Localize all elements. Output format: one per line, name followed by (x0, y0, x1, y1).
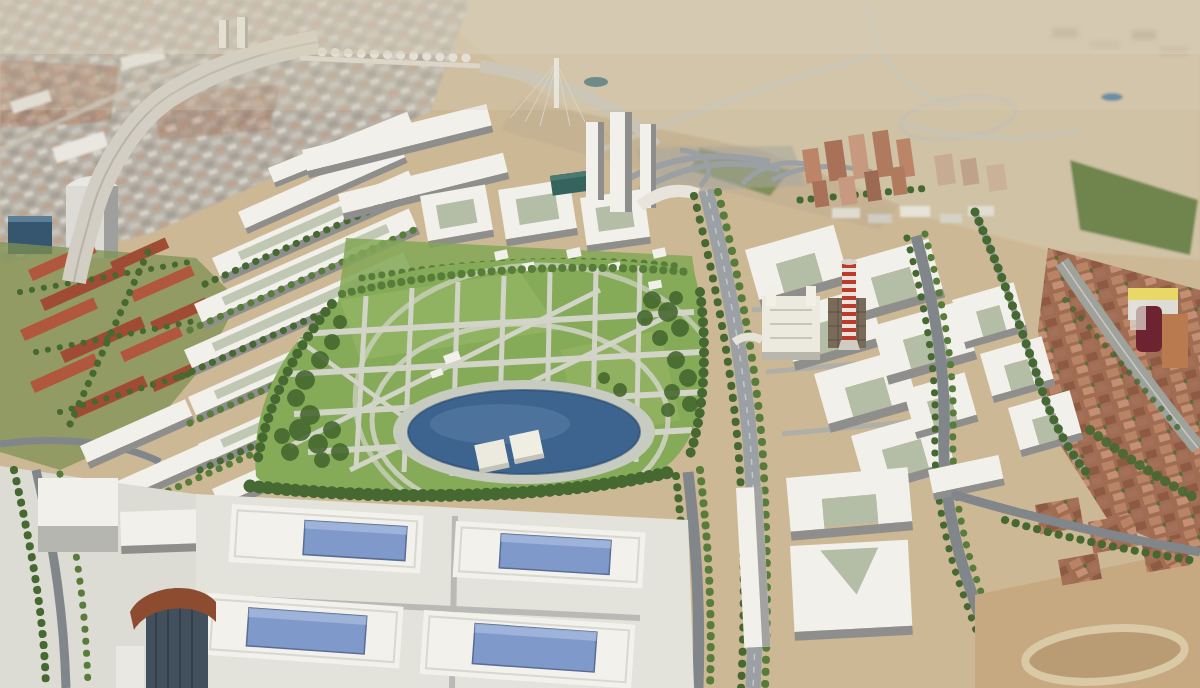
historic-white-building (762, 286, 820, 360)
highrise-tower (586, 122, 604, 200)
u-block (786, 467, 913, 540)
hall (453, 521, 646, 588)
yellow-roof-building (1128, 288, 1178, 301)
perimeter-block (420, 185, 494, 249)
highrise-tower (610, 112, 632, 212)
white-cube-building (38, 478, 118, 552)
haze-overlay (0, 0, 1200, 54)
aerial-render (0, 0, 1200, 688)
orange-brick-tower (1162, 314, 1188, 368)
hall (228, 504, 423, 574)
exhibition-halls (196, 494, 694, 688)
u-block (790, 540, 913, 641)
